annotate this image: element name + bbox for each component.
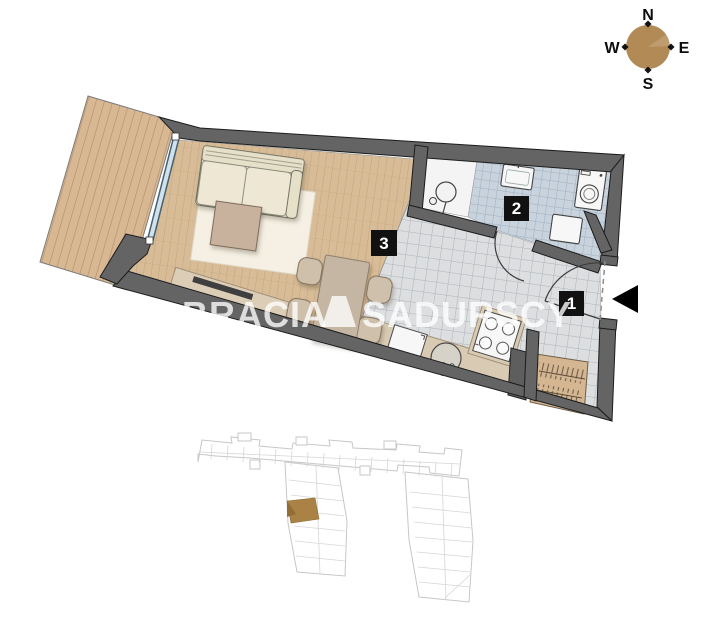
site-plan xyxy=(198,433,473,602)
watermark: BRACIA SADURSCY xyxy=(182,294,572,335)
compass-label-south: S xyxy=(643,76,654,93)
hall-stub-wall xyxy=(524,329,539,401)
floor-plan-svg: 3 2 1 BRACIA SADURSCY N E S W xyxy=(0,0,713,631)
compass-label-north: N xyxy=(642,7,654,24)
right-wall-lower xyxy=(597,322,616,421)
room-label-3: 3 xyxy=(371,230,397,256)
coffee-table xyxy=(210,201,262,251)
room-number: 3 xyxy=(379,234,388,253)
site-plan-detail xyxy=(360,466,370,475)
door-sill xyxy=(172,133,179,140)
compass-rose-icon: N E S W xyxy=(604,7,689,93)
watermark-brand-part1: BRACIA xyxy=(182,294,328,335)
door-sill xyxy=(146,237,153,244)
room-number: 2 xyxy=(512,199,521,218)
watermark-brand-part2: SADURSCY xyxy=(362,294,572,335)
site-plan-detail xyxy=(384,441,396,449)
compass-label-east: E xyxy=(679,40,690,57)
site-plan-detail xyxy=(238,433,251,441)
compass-label-west: W xyxy=(604,40,620,57)
chair xyxy=(295,256,323,286)
site-plan-detail xyxy=(250,460,260,469)
floor-plan-page: 3 2 1 BRACIA SADURSCY N E S W xyxy=(0,0,713,631)
shower-tray xyxy=(549,214,582,244)
washing-machine xyxy=(574,167,606,210)
entrance-direction-arrow-icon xyxy=(612,285,638,313)
entrance-jamb-bottom xyxy=(599,318,617,330)
room-label-2: 2 xyxy=(504,196,529,221)
site-plan-detail xyxy=(296,437,307,445)
entrance-jamb-top xyxy=(600,255,618,266)
